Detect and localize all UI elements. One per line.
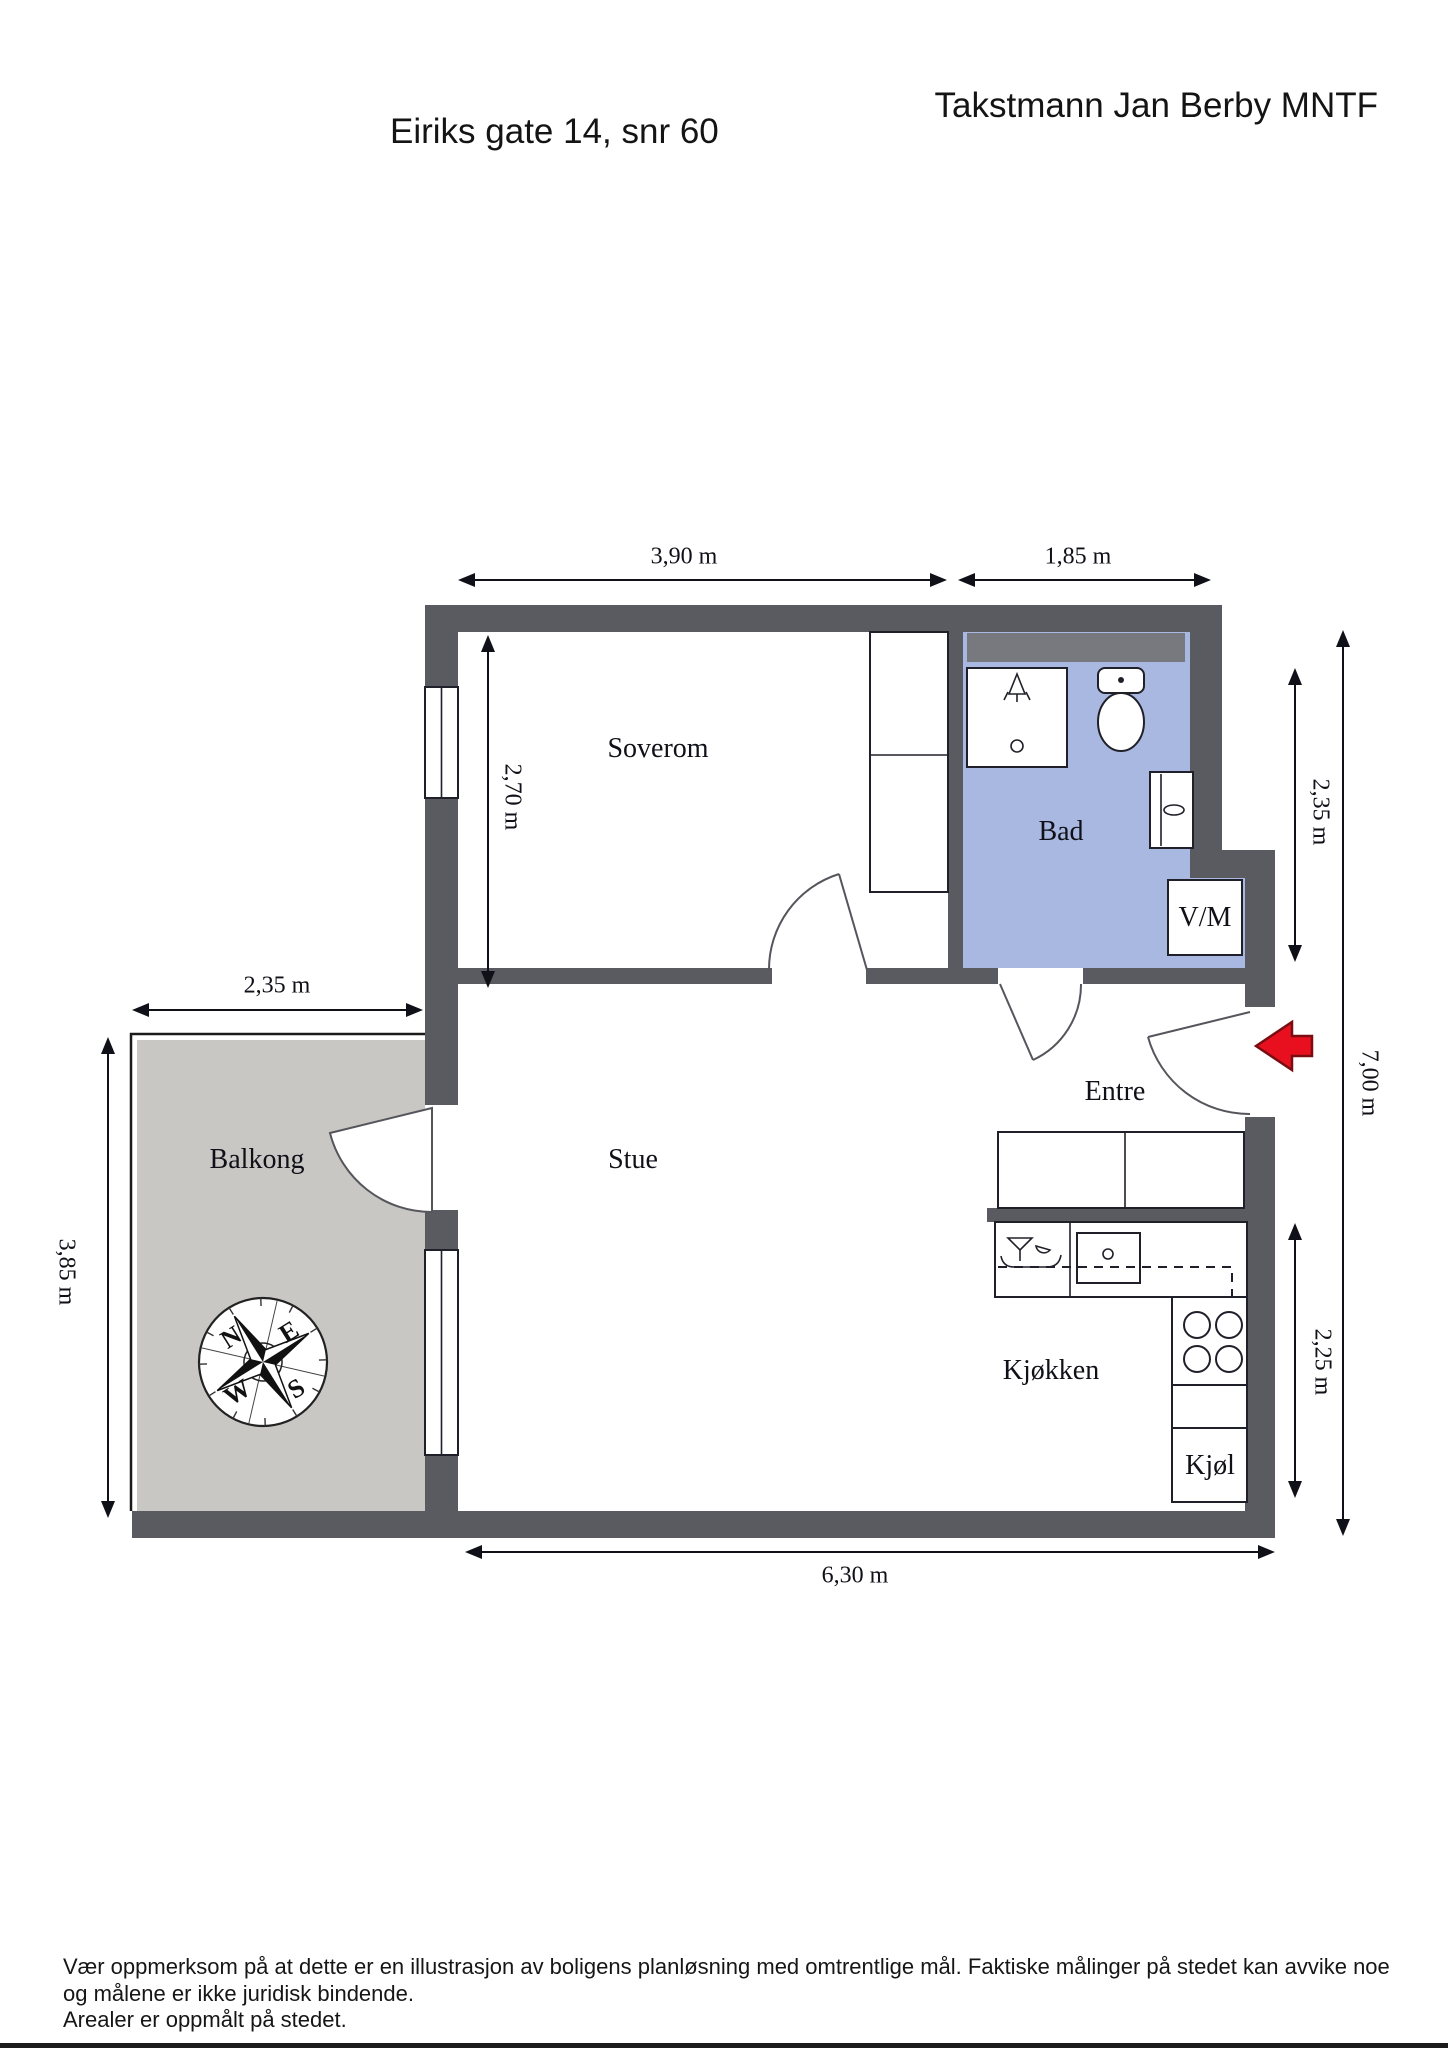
wall-entre-kitchen xyxy=(987,1208,1247,1222)
dim-bottom-width-line xyxy=(465,1545,1275,1559)
dim-balcony-depth: 3,85 m xyxy=(53,1239,80,1306)
wardrobe xyxy=(870,632,948,892)
dim-bath-depth: 2,35 m xyxy=(1307,779,1334,846)
disclaimer-line-2: og målene er ikke juridisk bindende. xyxy=(63,1981,414,2007)
shower xyxy=(967,668,1067,767)
room-label-kjokken: Kjøkken xyxy=(1003,1355,1099,1387)
wall-soverom-bad xyxy=(948,632,963,968)
wall-right-bad xyxy=(1190,605,1222,850)
dim-right-total-line xyxy=(1336,630,1350,1536)
wall-left-2 xyxy=(425,798,458,1105)
kitchen-lower-cabinet xyxy=(1172,1385,1247,1428)
bedroom-window xyxy=(425,687,458,798)
dim-kitchen-depth: 2,25 m xyxy=(1309,1329,1336,1396)
disclaimer-line-3: Arealer er oppmålt på stedet. xyxy=(63,2007,347,2033)
entrance-door xyxy=(1148,1012,1250,1114)
floorplan-page: Takstmann Jan Berby MNTF Eiriks gate 14,… xyxy=(0,0,1448,2048)
wall-soverom-stue-right xyxy=(866,968,998,984)
wall-left-1 xyxy=(425,605,458,687)
wall-soverom-stue-left xyxy=(458,968,772,984)
disclaimer-line-1: Vær oppmerksom på at dette er en illustr… xyxy=(63,1954,1390,1980)
stove xyxy=(1172,1297,1247,1385)
dim-balcony-width-line xyxy=(132,1003,423,1017)
dim-bedroom-width: 3,90 m xyxy=(651,544,718,571)
room-label-soverom: Soverom xyxy=(607,733,708,765)
bathroom-sink xyxy=(1150,772,1193,848)
wall-right-lower xyxy=(1245,1117,1275,1511)
bathroom-cabinet-band xyxy=(967,633,1185,662)
toilet xyxy=(1098,668,1144,751)
livingroom-window xyxy=(425,1250,458,1455)
entre-cabinets xyxy=(998,1132,1244,1208)
balcony-floor xyxy=(137,1040,425,1511)
wall-top xyxy=(425,605,1222,632)
balcony xyxy=(131,1034,425,1511)
room-label-vm: V/M xyxy=(1179,902,1232,934)
wall-right-upper xyxy=(1245,878,1275,1007)
dim-bedroom-width-line xyxy=(458,573,947,587)
dim-kitchen-depth-line xyxy=(1288,1223,1302,1498)
floorplan-drawing: N E S W xyxy=(0,0,1448,2048)
room-label-stue: Stue xyxy=(608,1144,658,1176)
dim-balcony-depth-line xyxy=(101,1037,115,1518)
room-label-entre: Entre xyxy=(1085,1076,1146,1108)
room-label-kjol: Kjøl xyxy=(1185,1450,1235,1482)
dim-bath-width: 1,85 m xyxy=(1045,544,1112,571)
wall-bottom xyxy=(132,1511,1275,1538)
bathroom-door xyxy=(1000,984,1081,1060)
wall-jog xyxy=(1190,850,1275,878)
kitchen-sink-basin xyxy=(1077,1233,1140,1283)
kitchen-counter xyxy=(995,1222,1247,1297)
dim-right-total: 7,00 m xyxy=(1356,1050,1383,1117)
dim-bath-width-line xyxy=(958,573,1211,587)
bedroom-door xyxy=(769,874,867,970)
room-label-balkong: Balkong xyxy=(210,1144,305,1176)
bottom-edge-bar xyxy=(0,2043,1448,2048)
wall-left-3 xyxy=(425,1210,458,1250)
dim-bedroom-depth: 2,70 m xyxy=(499,764,526,831)
dim-bottom-width: 6,30 m xyxy=(822,1563,889,1590)
dim-balcony-width: 2,35 m xyxy=(244,973,311,1000)
dim-bedroom-depth-line xyxy=(481,635,495,988)
dim-bath-depth-line xyxy=(1288,668,1302,962)
entrance-arrow-icon xyxy=(1256,1022,1312,1070)
wall-left-4 xyxy=(425,1455,458,1511)
room-label-bad: Bad xyxy=(1038,816,1083,848)
